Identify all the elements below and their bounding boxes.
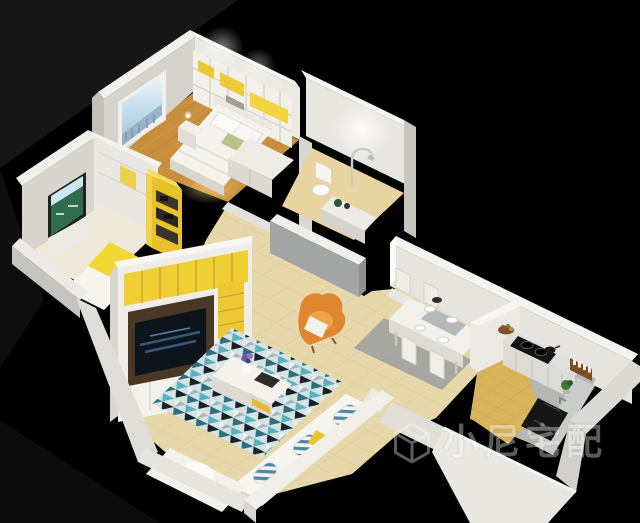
plate bbox=[425, 306, 436, 312]
floorplan-screenshot: 小尼宅配 bbox=[0, 0, 640, 523]
plate bbox=[447, 317, 458, 323]
plate bbox=[415, 325, 426, 331]
floorplan-render-svg bbox=[0, 0, 640, 523]
pan bbox=[432, 297, 442, 303]
plate bbox=[438, 337, 449, 343]
